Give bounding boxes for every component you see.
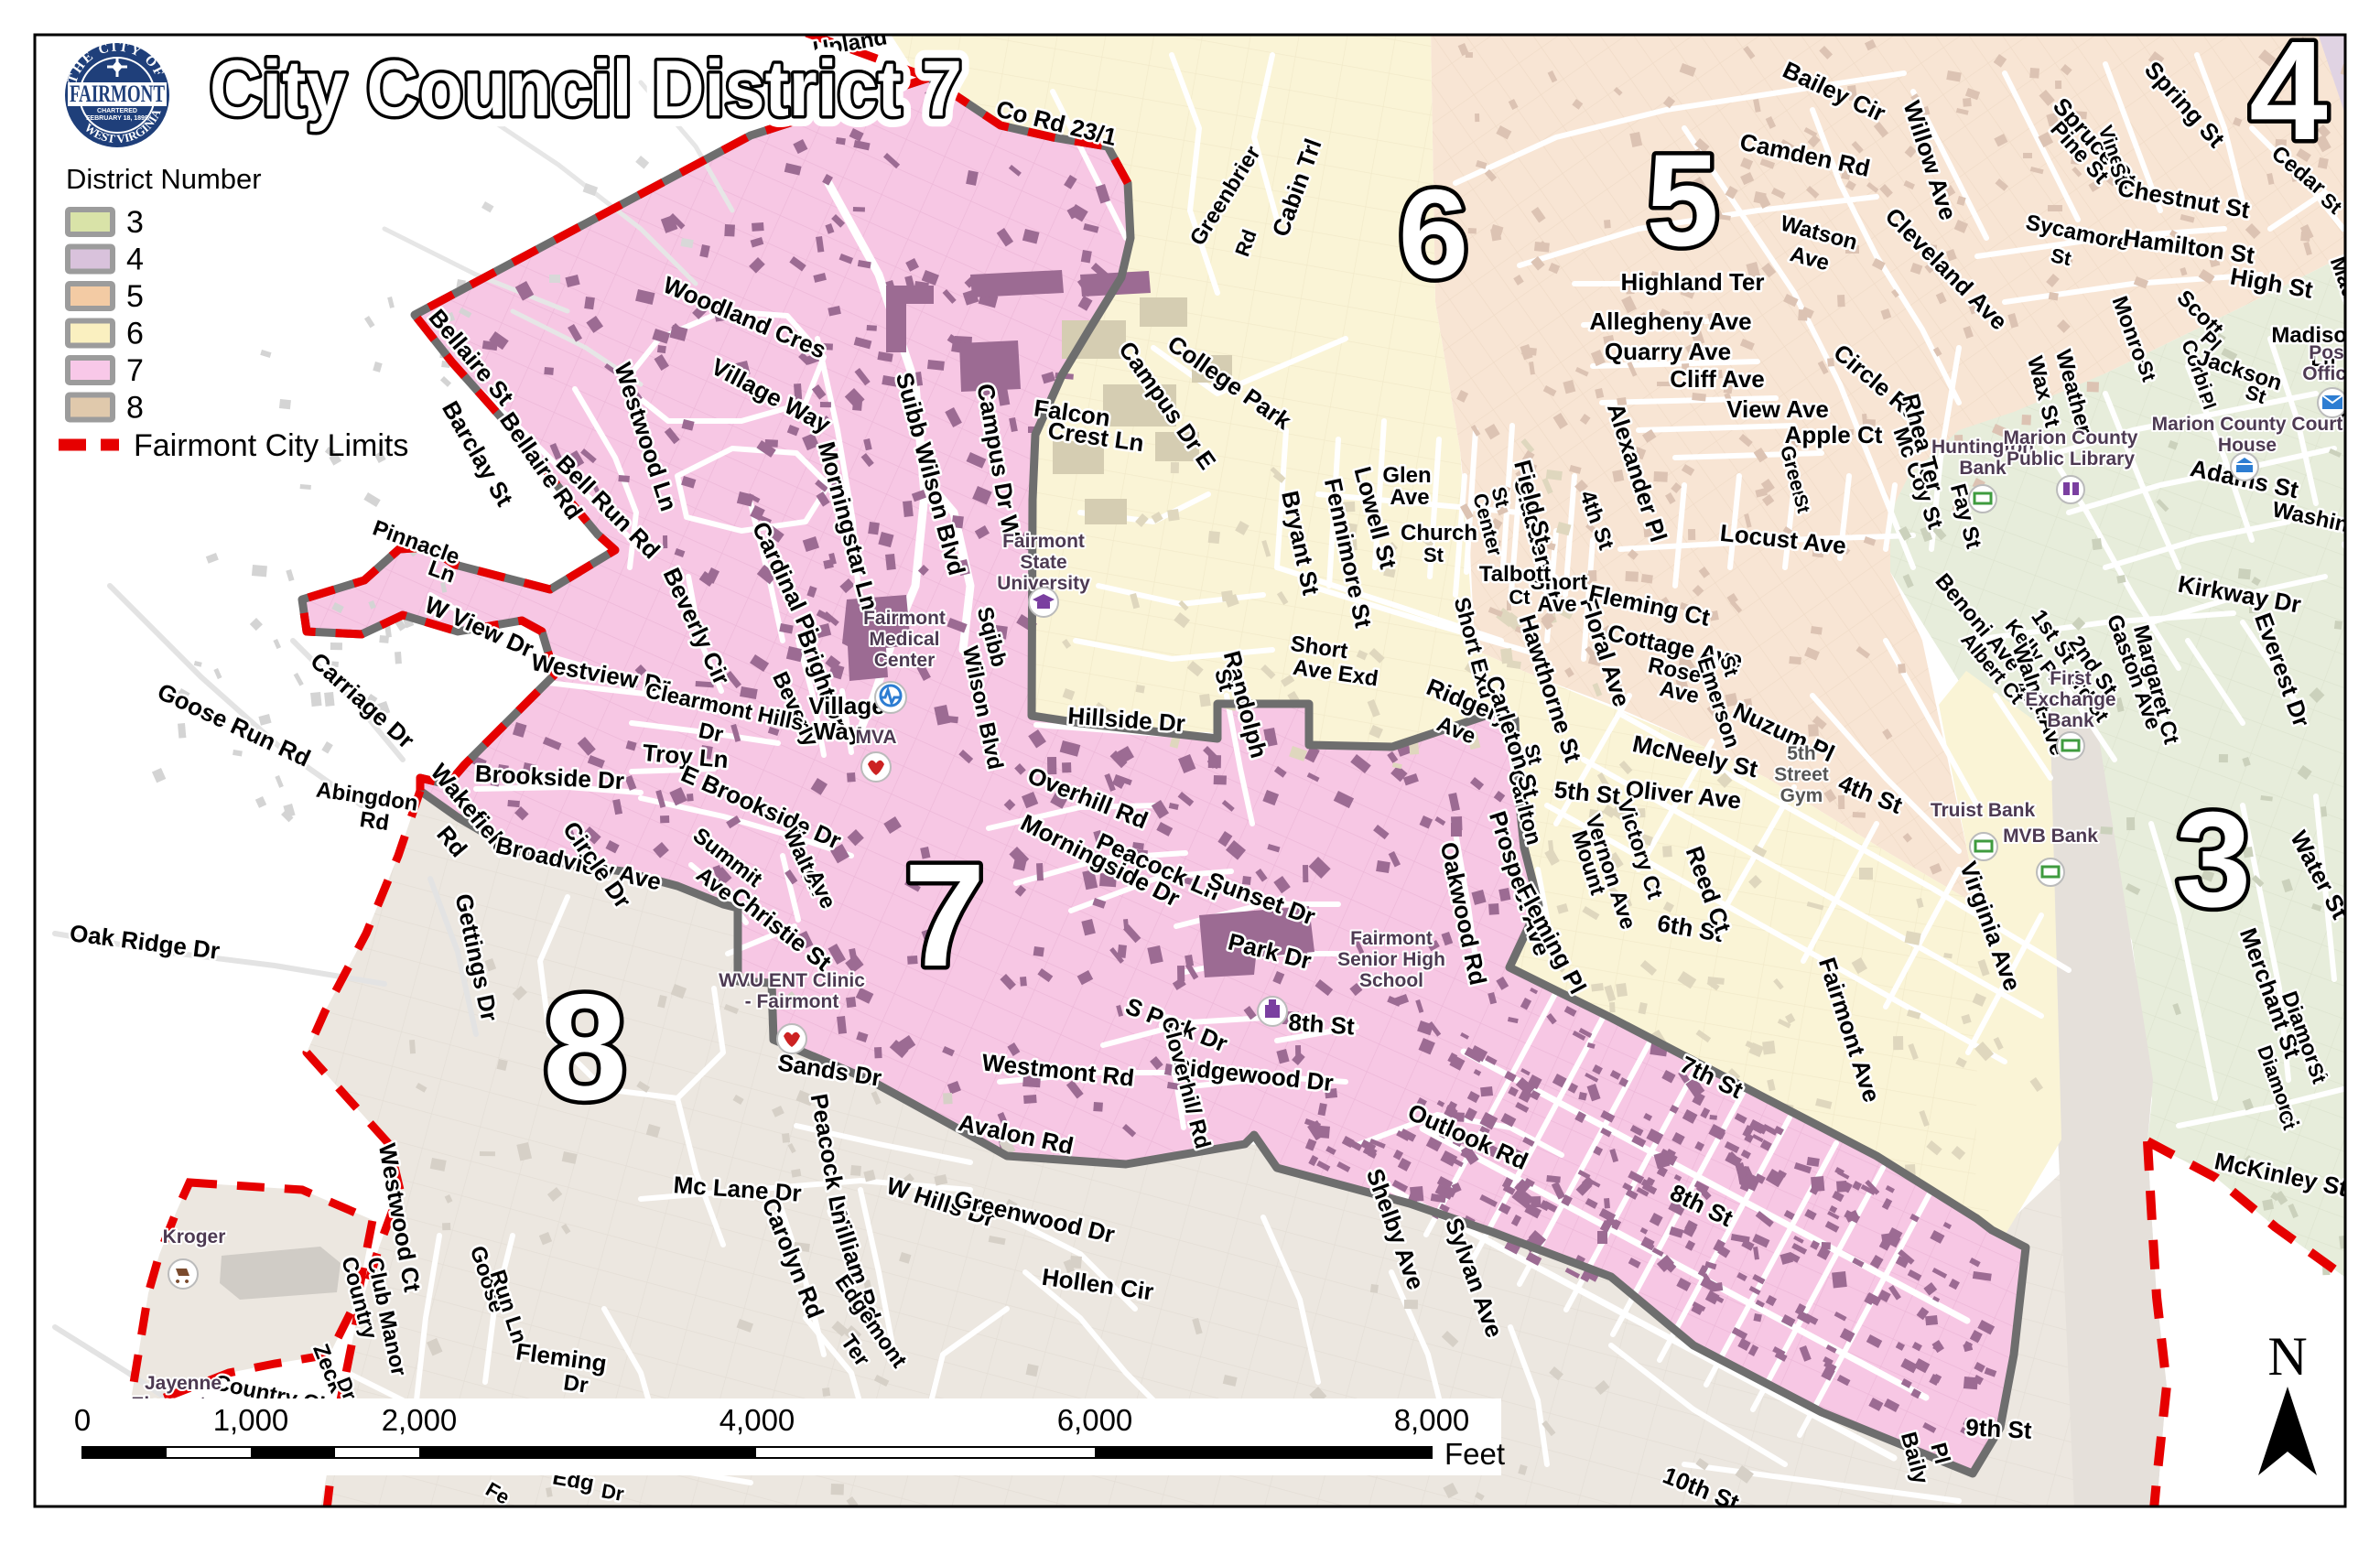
svg-text:Fairmont: Fairmont [863,608,946,629]
svg-text:MVB Bank: MVB Bank [2003,826,2098,847]
svg-text:Dr: Dr [600,1479,626,1506]
svg-text:8: 8 [543,963,627,1131]
svg-text:5: 5 [1646,128,1719,274]
svg-text:Public Library: Public Library [2007,448,2135,470]
svg-text:2,000: 2,000 [382,1403,458,1437]
svg-text:FAIRMONT: FAIRMONT [70,81,165,107]
svg-text:Bank: Bank [2047,710,2094,731]
svg-text:Glen: Glen [1382,463,1431,488]
svg-text:Medical: Medical [869,629,939,650]
svg-text:Truist Bank: Truist Bank [1931,800,2036,821]
svg-text:1,000: 1,000 [213,1403,289,1437]
svg-text:Dr: Dr [562,1370,590,1398]
svg-text:First: First [2050,668,2092,689]
svg-text:State: State [1020,552,1066,573]
svg-text:Marion County Court: Marion County Court [2152,414,2343,435]
svg-text:District Number: District Number [66,163,262,195]
svg-text:School: School [1359,970,1423,991]
svg-text:Ave: Ave [1537,592,1576,617]
svg-text:6: 6 [126,317,144,351]
svg-text:Center: Center [874,650,936,671]
svg-text:Apple Ct: Apple Ct [1785,421,1883,448]
svg-text:Allegheny Ave: Allegheny Ave [1589,308,1751,335]
svg-text:4: 4 [126,243,144,277]
svg-text:Talbott: Talbott [1479,562,1551,587]
svg-text:View Ave: View Ave [1726,395,1829,423]
svg-text:8th St: 8th St [1288,1009,1356,1041]
svg-text:7: 7 [904,833,986,997]
svg-text:6,000: 6,000 [1057,1403,1133,1437]
svg-text:City Council District 7: City Council District 7 [210,45,962,133]
svg-text:5: 5 [126,279,144,314]
svg-text:MVA: MVA [855,727,896,748]
svg-text:Bank: Bank [1959,458,2007,479]
svg-text:Fairmont: Fairmont [1350,928,1433,949]
svg-text:Church: Church [1401,521,1477,545]
svg-text:5th: 5th [1787,743,1816,764]
svg-text:Quarry Ave: Quarry Ave [1605,338,1731,365]
svg-text:Kroger: Kroger [163,1226,226,1247]
svg-text:Jayenne: Jayenne [145,1373,222,1394]
svg-text:Fairmont City Limits: Fairmont City Limits [134,428,408,463]
svg-text:Cliff Ave: Cliff Ave [1670,365,1765,393]
svg-text:3: 3 [2176,784,2251,935]
svg-text:Feet: Feet [1444,1437,1505,1471]
svg-text:CHARTERED: CHARTERED [97,108,137,114]
svg-text:St: St [1423,544,1444,567]
svg-text:8: 8 [126,391,144,426]
svg-text:Village: Village [808,692,884,719]
svg-text:7: 7 [126,353,144,388]
svg-text:6: 6 [1399,164,1469,305]
svg-text:Exchange: Exchange [2025,689,2115,710]
svg-text:0: 0 [74,1403,91,1437]
svg-text:Gym: Gym [1780,785,1823,806]
svg-text:- Fairmont: - Fairmont [745,991,839,1012]
svg-text:Rd: Rd [358,807,390,836]
svg-text:Street: Street [1774,764,1829,785]
svg-text:Fairmont: Fairmont [1002,531,1085,552]
svg-text:FEBRUARY 18, 1899: FEBRUARY 18, 1899 [86,115,148,122]
svg-text:Ave: Ave [1390,485,1429,510]
svg-text:Marion County: Marion County [2004,427,2138,448]
svg-text:Ct: Ct [1509,586,1531,609]
svg-text:Senior High: Senior High [1337,949,1445,970]
svg-text:9th St: 9th St [1965,1413,2033,1444]
svg-text:3: 3 [126,205,144,240]
svg-text:4,000: 4,000 [719,1403,795,1437]
svg-text:8,000: 8,000 [1394,1403,1470,1437]
svg-text:WVU ENT Clinic: WVU ENT Clinic [719,970,865,991]
svg-text:N: N [2267,1326,2307,1387]
